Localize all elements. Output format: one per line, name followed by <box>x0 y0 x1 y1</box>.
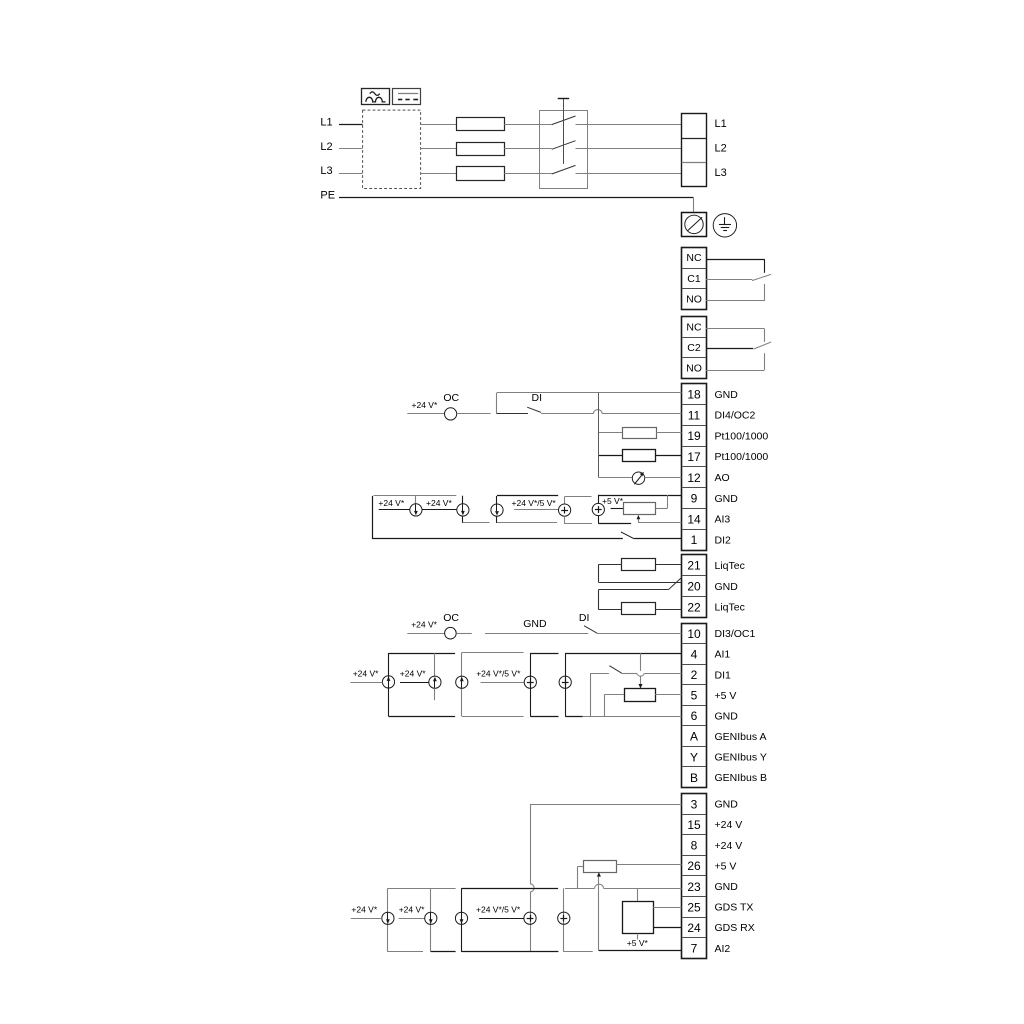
svg-text:23: 23 <box>687 880 701 894</box>
svg-text:1: 1 <box>691 533 698 547</box>
svg-text:+24 V*: +24 V* <box>412 400 438 410</box>
svg-text:5: 5 <box>691 689 698 703</box>
svg-text:C2: C2 <box>687 342 701 354</box>
svg-text:GND: GND <box>715 710 739 722</box>
svg-text:C1: C1 <box>687 273 701 285</box>
svg-text:L3: L3 <box>320 165 332 177</box>
svg-text:+24 V*: +24 V* <box>400 669 426 679</box>
svg-text:LiqTec: LiqTec <box>715 560 745 572</box>
svg-text:19: 19 <box>687 429 701 443</box>
svg-text:GENIbus A: GENIbus A <box>715 731 767 743</box>
svg-text:GND: GND <box>715 799 739 811</box>
svg-text:DI: DI <box>532 392 543 404</box>
svg-text:NC: NC <box>686 321 702 333</box>
svg-text:6: 6 <box>691 709 698 723</box>
svg-text:GENIbus B: GENIbus B <box>715 772 768 784</box>
svg-text:NO: NO <box>686 363 702 375</box>
svg-text:7: 7 <box>691 942 698 956</box>
svg-text:25: 25 <box>687 900 701 914</box>
svg-text:+24 V: +24 V <box>715 819 743 831</box>
svg-text:+5 V: +5 V <box>715 860 737 872</box>
svg-text:L1: L1 <box>320 116 332 128</box>
svg-text:10: 10 <box>687 627 701 641</box>
svg-text:22: 22 <box>687 600 701 614</box>
svg-text:OC: OC <box>443 612 459 624</box>
svg-text:AO: AO <box>715 472 730 484</box>
svg-text:GDS TX: GDS TX <box>715 902 754 914</box>
svg-text:+24 V*/5 V*: +24 V*/5 V* <box>512 498 557 508</box>
svg-text:9: 9 <box>691 492 698 506</box>
svg-text:AI2: AI2 <box>715 943 731 955</box>
svg-text:11: 11 <box>688 408 701 422</box>
svg-text:+24 V: +24 V <box>715 840 743 852</box>
svg-text:OC: OC <box>443 392 459 404</box>
svg-text:GND: GND <box>523 618 547 630</box>
svg-text:L2: L2 <box>320 141 332 153</box>
svg-text:DI1: DI1 <box>715 669 732 681</box>
svg-text:GND: GND <box>715 881 739 893</box>
svg-text:+24 V*: +24 V* <box>378 498 404 508</box>
svg-text:+5 V: +5 V <box>715 690 737 702</box>
svg-text:21: 21 <box>687 559 701 573</box>
svg-text:L2: L2 <box>715 142 727 154</box>
svg-text:+24 V*: +24 V* <box>411 620 437 630</box>
svg-text:18: 18 <box>687 388 701 402</box>
svg-text:GND: GND <box>715 389 739 401</box>
svg-text:+24 V*: +24 V* <box>426 498 452 508</box>
svg-text:DI2: DI2 <box>715 534 732 546</box>
svg-text:A: A <box>690 730 698 744</box>
svg-text:L3: L3 <box>715 167 727 179</box>
svg-text:26: 26 <box>687 859 701 873</box>
svg-text:4: 4 <box>691 648 698 662</box>
svg-text:GDS RX: GDS RX <box>715 922 755 934</box>
svg-text:Y: Y <box>690 750 698 764</box>
svg-text:AI3: AI3 <box>715 514 731 526</box>
svg-text:+5 V*: +5 V* <box>602 496 624 506</box>
svg-text:15: 15 <box>687 818 701 832</box>
svg-text:+24 V*/5 V*: +24 V*/5 V* <box>476 905 521 915</box>
svg-text:+24 V*/5 V*: +24 V*/5 V* <box>476 669 521 679</box>
svg-text:GND: GND <box>715 493 739 505</box>
svg-text:NO: NO <box>686 294 702 306</box>
svg-text:AI1: AI1 <box>715 649 731 661</box>
svg-text:+24 V*: +24 V* <box>353 669 379 679</box>
svg-text:PE: PE <box>320 190 335 202</box>
svg-text:14: 14 <box>687 512 701 526</box>
svg-text:17: 17 <box>687 450 701 464</box>
svg-text:2: 2 <box>691 668 698 682</box>
svg-text:+24 V*: +24 V* <box>399 905 425 915</box>
svg-text:DI4/OC2: DI4/OC2 <box>715 410 756 422</box>
svg-text:+5 V*: +5 V* <box>627 938 649 948</box>
svg-text:DI3/OC1: DI3/OC1 <box>715 628 756 640</box>
svg-text:NC: NC <box>686 252 702 264</box>
svg-text:Pt100/1000: Pt100/1000 <box>715 430 769 442</box>
svg-text:+24 V*: +24 V* <box>351 905 377 915</box>
svg-text:DI: DI <box>579 612 590 624</box>
svg-text:L1: L1 <box>715 118 727 130</box>
svg-text:20: 20 <box>687 580 701 594</box>
svg-text:12: 12 <box>687 471 701 485</box>
svg-text:Pt100/1000: Pt100/1000 <box>715 451 769 463</box>
svg-text:LiqTec: LiqTec <box>715 602 745 614</box>
svg-text:24: 24 <box>687 921 701 935</box>
svg-text:3: 3 <box>691 797 698 811</box>
svg-text:GND: GND <box>715 581 739 593</box>
svg-text:GENIbus Y: GENIbus Y <box>715 751 767 763</box>
svg-text:8: 8 <box>691 839 698 853</box>
svg-text:B: B <box>690 771 698 785</box>
